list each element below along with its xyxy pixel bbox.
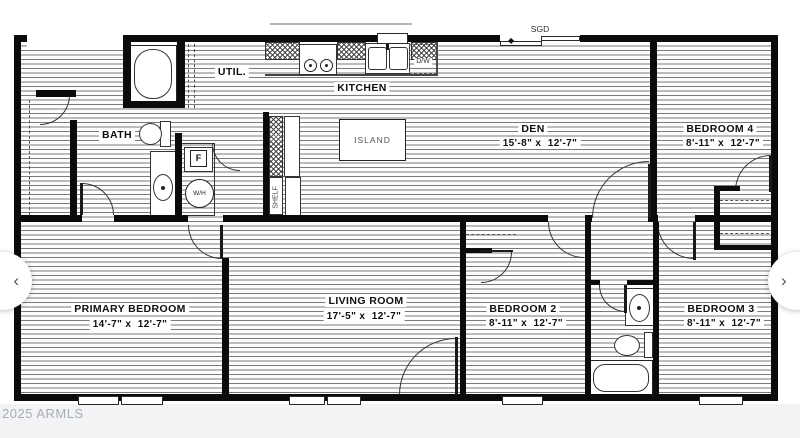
floorplan-viewer: 2025 ARMLS [0,0,800,438]
burner-dot [309,64,312,67]
room-label-kitchen: KITCHEN [334,82,389,94]
door-leaf [693,222,696,260]
wall [650,42,657,215]
wall [590,280,600,285]
room-label-bedroom4: BEDROOM 4 [683,123,756,135]
dishwasher-label: D/W [414,58,432,65]
door-leaf [769,156,772,192]
wall [123,42,131,108]
bathtub [593,364,649,392]
wall [70,120,77,218]
wall [627,280,655,285]
closet-rod [466,234,516,235]
shelf-box: SHELF [269,177,283,215]
room-dims-living: 17'-5" x 12'-7" [324,311,405,322]
wall [223,215,548,222]
room-label-bath: BATH [99,129,135,141]
wall [695,215,771,222]
wall [14,35,21,401]
window [699,396,743,405]
util-bifold [194,44,195,108]
kitchen-window [377,33,408,44]
kitchen-island: ISLAND [339,119,406,161]
sink-basin [368,47,387,70]
faucet [161,186,165,190]
closet-wall [714,245,771,250]
window [502,396,543,405]
closet-rod [720,233,769,234]
window-dash [29,100,30,215]
room-label-bedroom3: BEDROOM 3 [684,303,757,315]
eave-line [270,23,412,25]
room-dims-bedroom2: 8'-11" x 12'-7" [486,318,566,329]
sgd-marker-icon: ◆ [508,36,514,45]
island-label: ISLAND [340,135,405,145]
room-dims-bedroom3: 8'-11" x 12'-7" [684,318,764,329]
white-patch [27,25,123,50]
wall [177,42,185,108]
wall [36,90,76,97]
chevron-left-icon: ‹ [13,272,19,289]
wall [771,35,778,401]
wall [585,215,592,222]
toilet-bowl [139,123,162,145]
window [327,396,361,405]
water-heater: W/H [185,179,214,208]
shelf-label: SHELF [273,179,280,217]
wall [222,258,229,401]
room-label-living: LIVING ROOM [326,295,407,307]
room-label-util: UTIL. [215,66,249,78]
room-dims-bedroom4: 8'-11" x 12'-7" [683,138,763,149]
sgd-panel [541,36,580,41]
closet-rod [720,200,769,201]
window [78,396,119,405]
sink-basin [389,47,408,70]
wall [123,101,185,108]
furnace: F [190,150,207,167]
door-leaf [220,225,223,258]
bathtub [134,49,172,99]
toilet-tank [644,332,653,358]
room-label-primary: PRIMARY BEDROOM [71,303,189,315]
wall [263,112,269,217]
room-label-bedroom2: BEDROOM 2 [486,303,559,315]
room-dims-den: 15'-8" x 12'-7" [500,138,581,149]
stove [299,44,337,75]
bottom-strip [0,404,800,438]
door-leaf [480,250,513,252]
closet-wall [714,186,740,191]
wall [653,222,659,394]
counter [337,42,366,60]
wall [175,133,182,217]
door-leaf [648,164,651,218]
sgd-panel [500,41,542,46]
door-leaf [624,285,627,313]
toilet-bowl [614,335,640,356]
sgd-label: SGD [529,24,551,34]
door-leaf [80,183,83,215]
room-label-den: DEN [518,123,547,135]
faucet [637,306,641,310]
watermark: 2025 ARMLS [2,406,84,421]
window [289,396,325,405]
pantry [269,116,283,177]
window [121,396,163,405]
shelf-box [285,177,301,217]
room-dims-primary: 14'-7" x 12'-7" [90,319,171,330]
counter-edge [265,74,438,76]
counter [265,42,300,60]
burner-dot [325,64,328,67]
pantry-shelf [284,116,300,177]
chevron-right-icon: › [781,272,787,289]
door-leaf [455,337,458,395]
util-bifold [188,44,189,108]
wall [585,222,591,394]
